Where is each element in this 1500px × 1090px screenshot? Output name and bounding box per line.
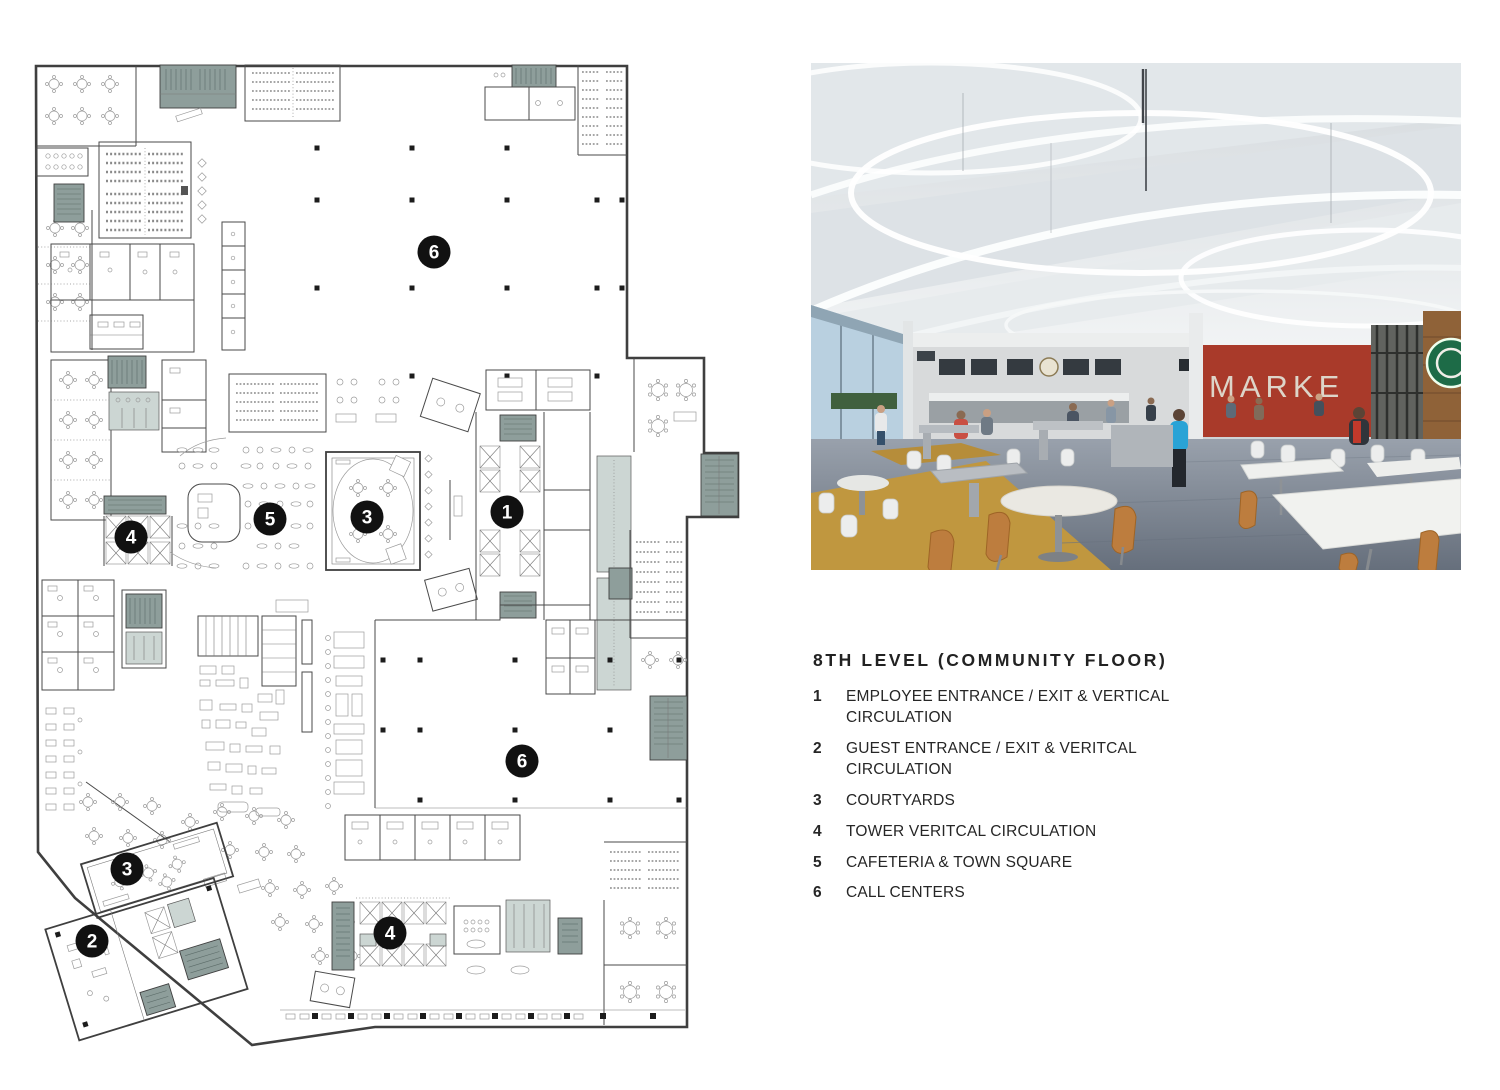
svg-text:2: 2: [87, 932, 98, 953]
legend-title: 8TH LEVEL (COMMUNITY FLOOR): [813, 650, 1193, 671]
legend-item-number: 3: [813, 791, 846, 812]
menu-board: [971, 359, 997, 375]
legend-item: 1 EMPLOYEE ENTRANCE / EXIT & VERTICAL CI…: [813, 687, 1193, 729]
svg-text:3: 3: [362, 508, 373, 529]
legend-item-label: TOWER VERITCAL CIRCULATION: [846, 822, 1176, 843]
svg-text:6: 6: [517, 752, 528, 773]
ceiling: [811, 63, 1461, 363]
cafeteria-photo: MARKE: [811, 63, 1461, 570]
svg-text:1: 1: [502, 503, 513, 524]
legend-item-label: CALL CENTERS: [846, 883, 1176, 904]
column: [903, 321, 913, 443]
lower-right-stair: [650, 696, 687, 760]
svg-text:3: 3: [122, 860, 133, 881]
svg-text:5: 5: [265, 510, 276, 531]
legend-item-number: 4: [813, 822, 846, 843]
legend-item-label: EMPLOYEE ENTRANCE / EXIT & VERTICAL CIRC…: [846, 687, 1176, 729]
slat-screen: [1371, 325, 1427, 439]
menu-board: [1007, 359, 1033, 375]
legend-item: 3 COURTYARDS: [813, 791, 1193, 812]
legend-item-label: CAFETERIA & TOWN SQUARE: [846, 853, 1176, 874]
legend-item: 2 GUEST ENTRANCE / EXIT & VERITCAL CIRCU…: [813, 739, 1193, 781]
clock-sign: [1040, 358, 1058, 376]
legend-item-number: 5: [813, 853, 846, 874]
menu-board: [1095, 359, 1121, 375]
hanging-sign: [917, 351, 935, 361]
svg-text:6: 6: [429, 243, 440, 264]
legend-item: 6 CALL CENTERS: [813, 883, 1193, 904]
legend-item-number: 1: [813, 687, 846, 729]
svg-text:4: 4: [385, 924, 396, 945]
menu-board: [939, 359, 965, 375]
floor-plan: 615346324: [30, 60, 745, 1055]
legend: 8TH LEVEL (COMMUNITY FLOOR) 1 EMPLOYEE E…: [813, 650, 1193, 914]
legend-item: 5 CAFETERIA & TOWN SQUARE: [813, 853, 1193, 874]
legend-item-label: COURTYARDS: [846, 791, 1176, 812]
legend-item-number: 2: [813, 739, 846, 781]
legend-item-number: 6: [813, 883, 846, 904]
legend-item-label: GUEST ENTRANCE / EXIT & VERITCAL CIRCULA…: [846, 739, 1176, 781]
svg-text:4: 4: [126, 528, 137, 549]
legend-item: 4 TOWER VERITCAL CIRCULATION: [813, 822, 1193, 843]
column: [1189, 313, 1203, 441]
menu-board: [1063, 359, 1089, 375]
presentation-page: 615346324: [0, 0, 1500, 1090]
